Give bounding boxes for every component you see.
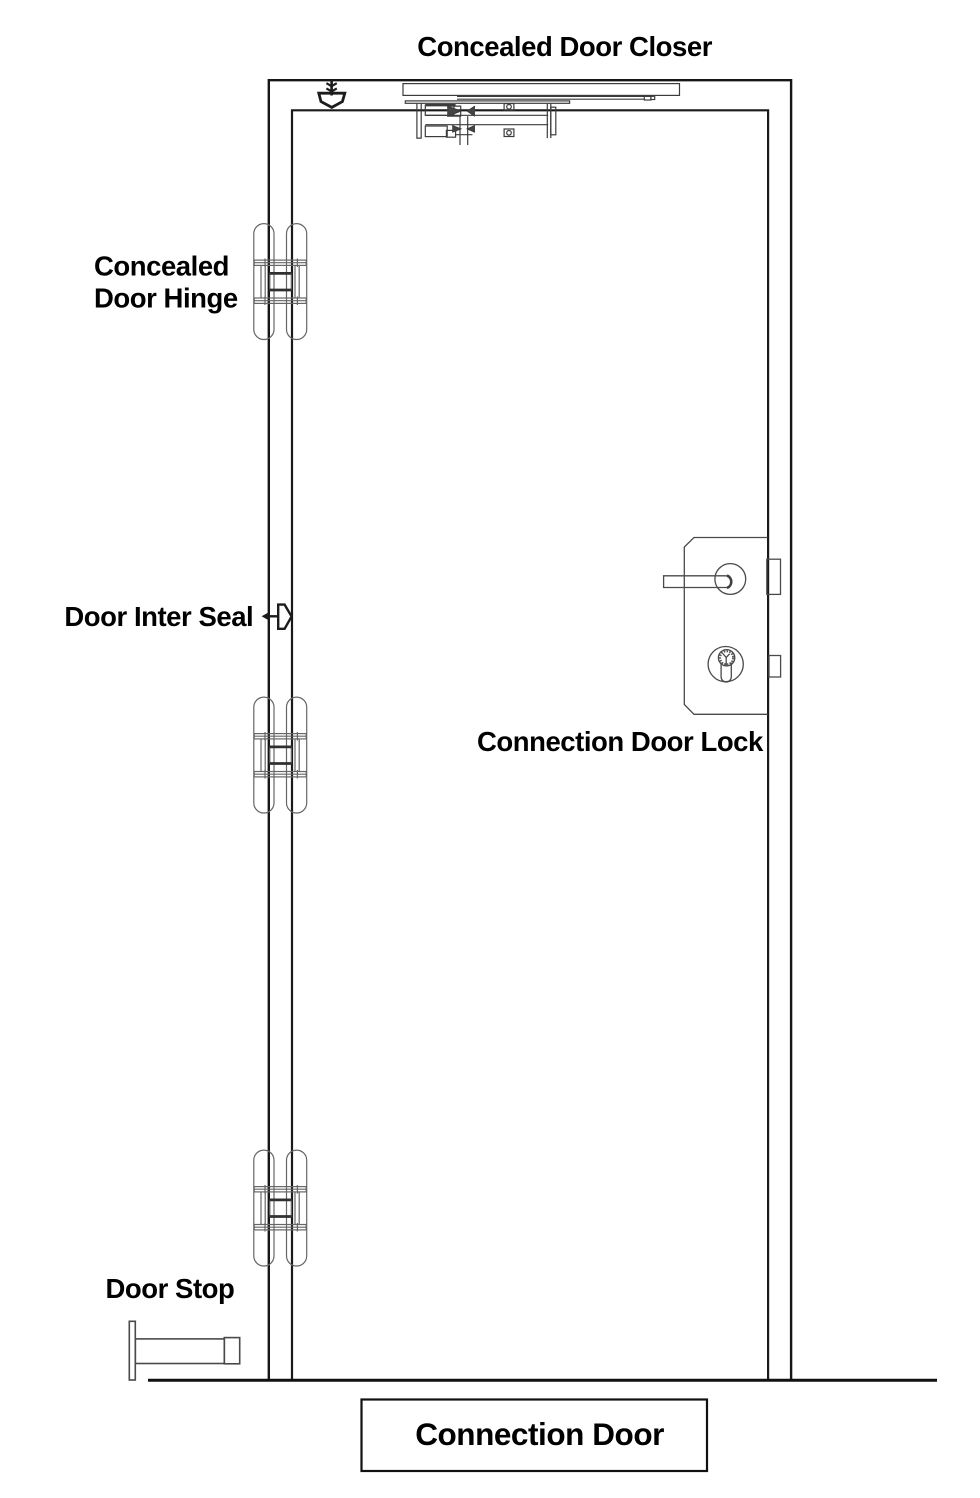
svg-text:Concealed Door Closer: Concealed Door Closer (417, 31, 712, 62)
svg-text:Door Inter Seal: Door Inter Seal (64, 601, 253, 632)
svg-text:Door Stop: Door Stop (106, 1273, 235, 1304)
svg-text:Door Hinge: Door Hinge (94, 283, 238, 314)
svg-text:Connection Door Lock: Connection Door Lock (477, 726, 764, 757)
svg-text:Connection Door: Connection Door (415, 1416, 664, 1452)
svg-text:Concealed: Concealed (94, 251, 229, 282)
